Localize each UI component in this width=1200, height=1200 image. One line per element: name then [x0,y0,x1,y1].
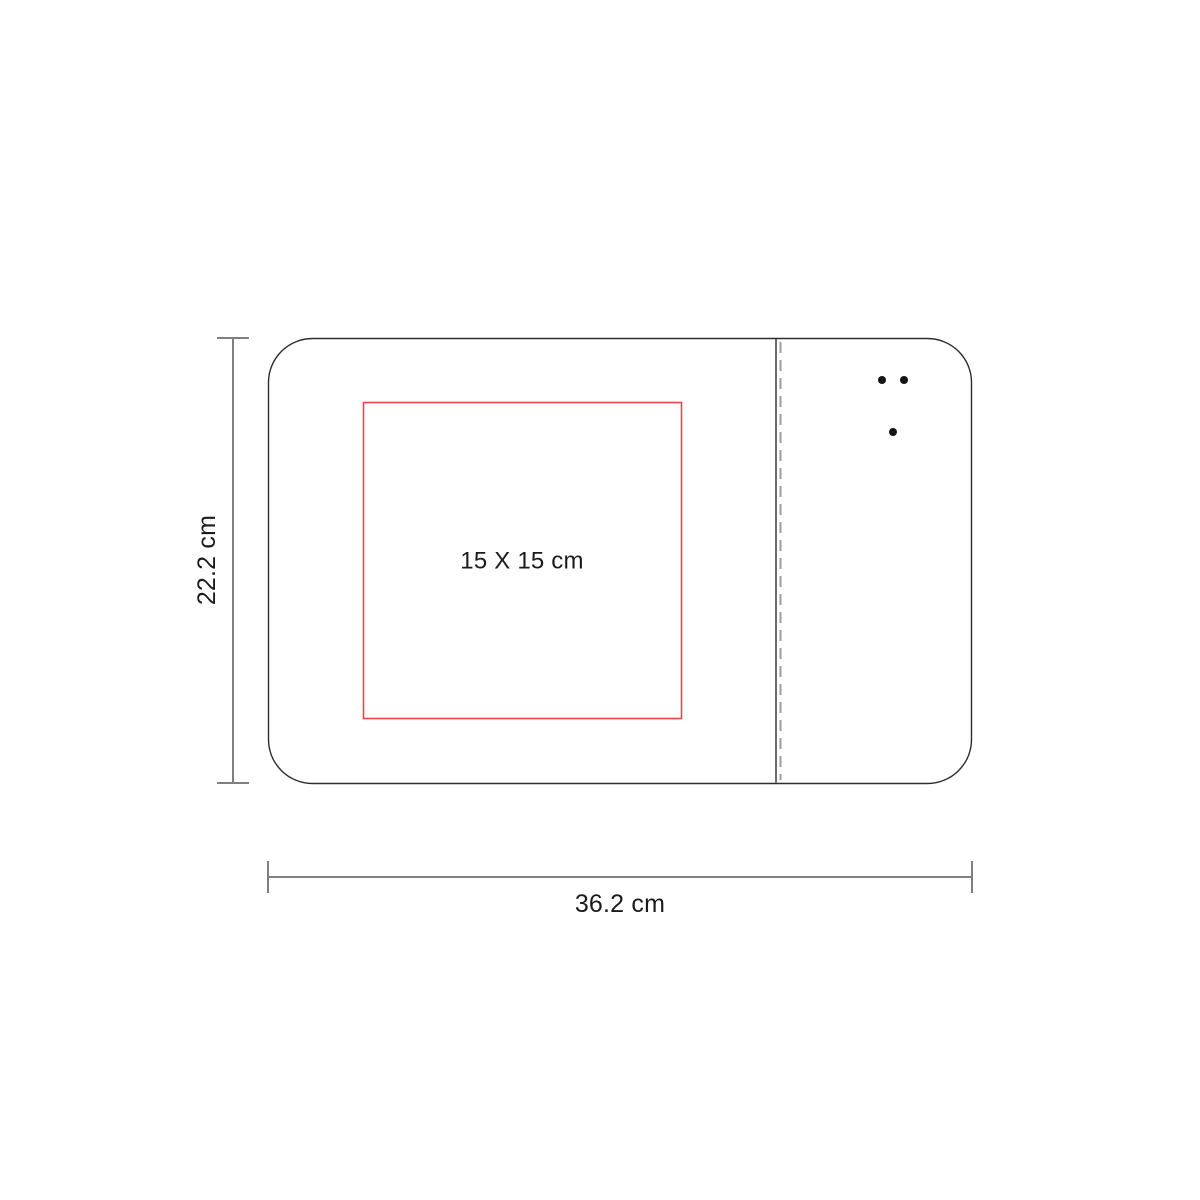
dimension-diagram-page: 15 X 15 cm 22.2 cm 36.2 cm [0,0,1200,1200]
flap-dot-2 [900,376,908,384]
width-dimension: 36.2 cm [268,861,972,918]
product-dimension-diagram: 15 X 15 cm 22.2 cm 36.2 cm [0,0,1200,1200]
flap-dot-1 [878,376,886,384]
product-outline [269,339,972,784]
width-dimension-label: 36.2 cm [575,890,665,918]
print-area-label: 15 X 15 cm [460,547,583,574]
height-dimension: 22.2 cm [193,338,249,783]
flap-dot-3 [889,428,897,436]
height-dimension-label: 22.2 cm [193,515,221,605]
